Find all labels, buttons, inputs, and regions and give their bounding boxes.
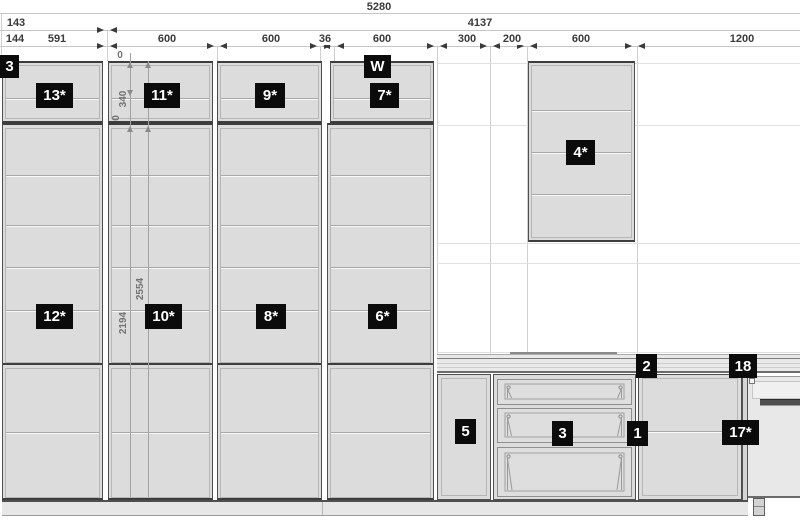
dimension-label: 600 [370, 33, 394, 45]
dim-tick [127, 62, 133, 68]
dim-arrow [638, 43, 645, 49]
cabinet-badge-13: 13* [36, 83, 73, 108]
dim-arrow [480, 43, 487, 49]
dim-arrow [110, 43, 117, 49]
cabinet-badge-7: 7* [370, 83, 399, 108]
cabinet-badge-18: 18 [729, 354, 757, 378]
shelf-line [6, 267, 99, 268]
vertical-dim-line [130, 53, 131, 497]
dim-arrow [625, 43, 632, 49]
appliance-handle-shadow [760, 405, 800, 406]
cabinet-badge-10: 10* [145, 304, 182, 329]
cabinet-badge-5: 5 [455, 419, 476, 444]
cabinet-badge-12: 12* [36, 304, 73, 329]
cabinet-badge-11: 11* [144, 83, 180, 108]
dimension-label: 1200 [727, 33, 757, 45]
shelf-line [221, 175, 318, 176]
section-divider [3, 363, 102, 365]
cabinet-badge-17: 17* [722, 420, 759, 445]
dimension-label: 300 [455, 33, 479, 45]
vertical-dimension-label: 0 [112, 115, 122, 121]
dimension-label: 591 [45, 33, 69, 45]
cabinet-badge-3-base: 3 [552, 421, 573, 446]
dim-tick [145, 126, 151, 132]
door-outline [330, 368, 431, 498]
shelf-line [112, 267, 209, 268]
dimension-label: 36 [316, 33, 334, 45]
dim-arrow [337, 43, 344, 49]
dimension-label: 5280 [364, 1, 394, 13]
shelf-line [6, 175, 99, 176]
shelf-line [331, 225, 430, 226]
plinth [2, 500, 748, 516]
door-seam [331, 432, 430, 433]
door-seam [532, 110, 631, 111]
dimension-label: 4137 [465, 17, 495, 29]
section-divider [109, 363, 212, 365]
cabinet-badge-3-top: 3 [0, 55, 19, 78]
dimension-label: 143 [4, 17, 28, 29]
dimension-line [0, 46, 800, 47]
section-divider [218, 363, 321, 365]
dimension-extension-line [637, 46, 638, 354]
appliance-foot-line [754, 506, 764, 507]
dimension-extension-line [334, 46, 335, 61]
shelf-line [331, 267, 430, 268]
dimension-label: 600 [569, 33, 593, 45]
door-seam [6, 432, 99, 433]
shelf-line [112, 225, 209, 226]
vertical-dimension-label: 2554 [136, 278, 146, 300]
shelf-line [112, 175, 209, 176]
cabinet-badge-4: 4* [566, 140, 595, 165]
wall-reference-line [437, 352, 800, 353]
cabinet-badge-9: 9* [255, 83, 285, 108]
dimension-label: 600 [259, 33, 283, 45]
dimension-extension-line [217, 46, 218, 61]
dimension-label: 200 [500, 33, 524, 45]
dimension-line [0, 30, 800, 31]
cabinet-badge-1: 1 [627, 421, 648, 446]
shelf-line [221, 267, 318, 268]
wall-reference-line [437, 243, 800, 244]
drawer-profile [498, 380, 631, 404]
vertical-dimension-label: 0 [117, 51, 123, 61]
dimension-label: 144 [3, 33, 27, 45]
plinth-seam [322, 502, 323, 515]
drawer-profile [498, 448, 631, 496]
dimension-extension-line [437, 46, 438, 354]
door-outline [220, 368, 319, 498]
dim-tick [145, 62, 151, 68]
cabinet-badge-8: 8* [256, 304, 286, 329]
door-outline [111, 368, 210, 498]
section-divider [328, 363, 433, 365]
kitchen-elevation-drawing: 5280143413714459160060036600300200600120… [0, 0, 800, 520]
shelf-line [6, 225, 99, 226]
door-seam [532, 194, 631, 195]
cabinet-badge-6: 6* [368, 304, 397, 329]
door-seam [112, 432, 209, 433]
dim-arrow [427, 43, 434, 49]
vertical-dimension-label: 2194 [119, 312, 129, 334]
dim-arrow [97, 43, 104, 49]
drawer-front [497, 379, 632, 405]
dim-arrow [97, 27, 104, 33]
dim-arrow [220, 43, 227, 49]
shelf-line [331, 175, 430, 176]
dimension-label: 600 [155, 33, 179, 45]
wall-reference-line [437, 263, 800, 264]
hinge-marker [749, 378, 755, 384]
shelf-line [221, 225, 318, 226]
dim-tick [127, 126, 133, 132]
appliance-panel [752, 381, 800, 399]
dimension-extension-line [320, 46, 321, 61]
dim-arrow [440, 43, 447, 49]
cabinet-badge-2: 2 [636, 354, 657, 378]
cabinet-badge-w: W [364, 55, 391, 78]
dimension-extension-line [490, 46, 491, 372]
door-outline [5, 368, 100, 498]
worktop-recess-line [510, 352, 617, 354]
dim-arrow [530, 43, 537, 49]
door-seam [221, 432, 318, 433]
drawer-front [497, 447, 632, 497]
dim-arrow [207, 43, 214, 49]
dim-tick [127, 90, 133, 96]
dim-arrow [110, 27, 117, 33]
dimension-line [0, 13, 800, 14]
appliance-foot [753, 498, 765, 516]
